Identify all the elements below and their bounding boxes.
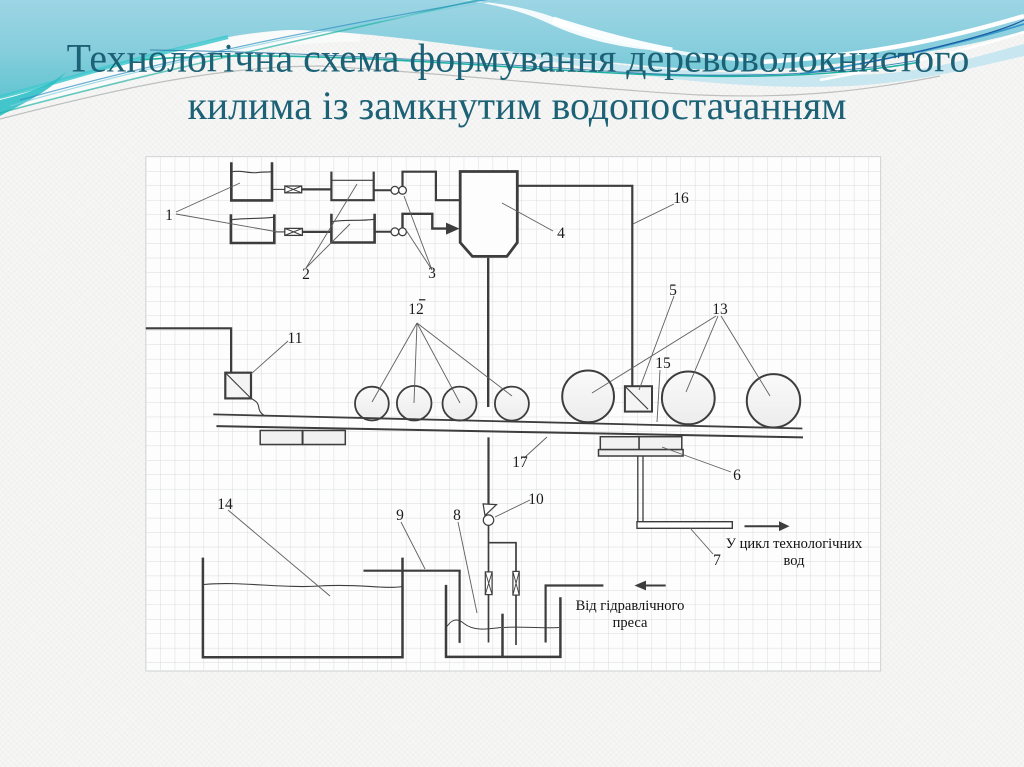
svg-text:У цикл технологічних: У цикл технологічних — [726, 536, 863, 552]
svg-text:7: 7 — [713, 552, 721, 569]
svg-text:15: 15 — [655, 355, 671, 372]
svg-text:1: 1 — [165, 207, 173, 224]
svg-text:4: 4 — [557, 225, 565, 242]
svg-text:17: 17 — [512, 454, 528, 471]
svg-text:11: 11 — [288, 330, 303, 347]
svg-text:9: 9 — [396, 507, 404, 524]
svg-text:3: 3 — [428, 265, 436, 282]
svg-text:16: 16 — [673, 190, 689, 207]
svg-text:10: 10 — [528, 491, 544, 508]
svg-text:2: 2 — [302, 266, 310, 283]
svg-text:вод: вод — [784, 553, 806, 569]
svg-text:5: 5 — [669, 282, 677, 299]
svg-text:13: 13 — [712, 301, 728, 318]
svg-text:8: 8 — [453, 507, 461, 524]
svg-text:Технологічна схема формування: Технологічна схема формування деревоволо… — [67, 37, 970, 81]
svg-text:6: 6 — [733, 467, 741, 484]
svg-text:12: 12 — [408, 301, 424, 318]
svg-text:преса: преса — [613, 615, 648, 631]
svg-text:килима із замкнутим водопостач: килима із замкнутим водопостачанням — [188, 84, 847, 128]
svg-text:14: 14 — [217, 496, 233, 513]
svg-text:Від гідравлічного: Від гідравлічного — [576, 598, 685, 614]
